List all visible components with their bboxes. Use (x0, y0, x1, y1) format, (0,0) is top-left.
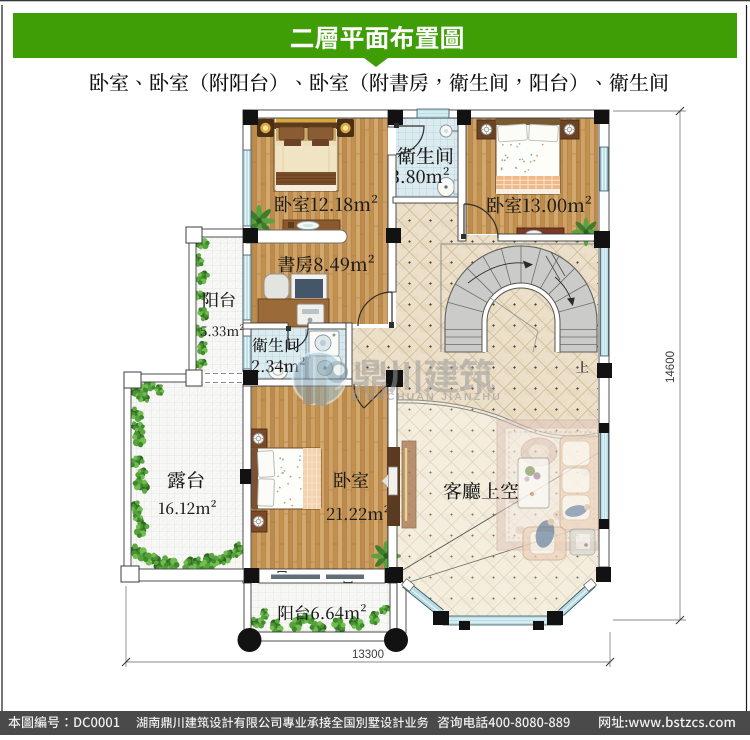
svg-text:13300: 13300 (352, 649, 384, 661)
svg-text:DINGCHUAN JIANZHU: DINGCHUAN JIANZHU (352, 391, 502, 403)
svg-text:14600: 14600 (665, 351, 677, 383)
